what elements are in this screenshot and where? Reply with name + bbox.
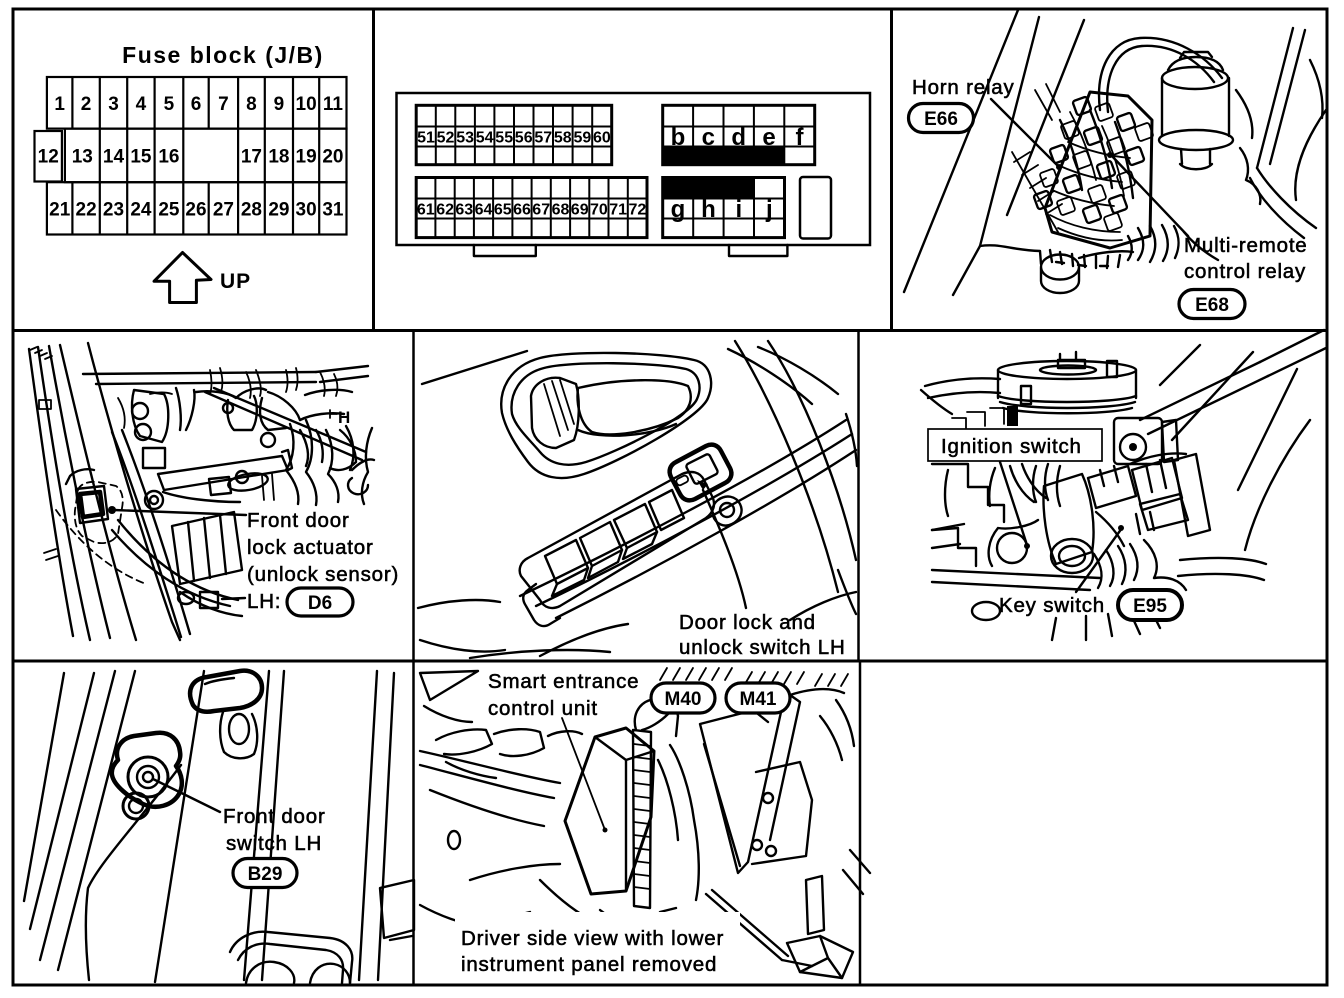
- svg-text:lock actuator: lock actuator: [247, 536, 374, 559]
- svg-text:D6: D6: [308, 593, 332, 614]
- svg-text:Key switch: Key switch: [999, 594, 1105, 617]
- svg-text:72: 72: [629, 201, 647, 218]
- svg-text:24: 24: [130, 199, 152, 220]
- svg-text:instrument panel removed: instrument panel removed: [461, 953, 717, 976]
- svg-text:21: 21: [49, 199, 71, 220]
- svg-text:62: 62: [436, 201, 454, 218]
- svg-text:h: h: [701, 196, 716, 223]
- svg-text:68: 68: [552, 201, 570, 218]
- svg-text:29: 29: [268, 199, 289, 220]
- svg-text:55: 55: [495, 129, 513, 146]
- svg-text:E66: E66: [924, 109, 958, 130]
- svg-text:M40: M40: [665, 689, 702, 710]
- svg-text:17: 17: [241, 146, 262, 167]
- svg-text:E68: E68: [1195, 295, 1229, 316]
- svg-text:11: 11: [323, 94, 344, 115]
- svg-text:8: 8: [246, 94, 257, 115]
- svg-text:28: 28: [241, 199, 262, 220]
- svg-text:E95: E95: [1133, 596, 1167, 617]
- svg-text:control unit: control unit: [488, 697, 598, 720]
- svg-text:j: j: [765, 196, 773, 223]
- svg-text:23: 23: [103, 199, 124, 220]
- svg-text:6: 6: [191, 94, 202, 115]
- svg-text:70: 70: [590, 201, 608, 218]
- svg-text:31: 31: [322, 199, 344, 220]
- svg-text:H: H: [338, 408, 350, 427]
- svg-text:71: 71: [609, 201, 627, 218]
- svg-text:69: 69: [571, 201, 589, 218]
- svg-text:66: 66: [513, 201, 531, 218]
- svg-text:54: 54: [476, 129, 494, 146]
- svg-text:61: 61: [417, 201, 435, 218]
- svg-text:i: i: [735, 196, 742, 223]
- svg-text:Ignition switch: Ignition switch: [941, 435, 1082, 458]
- svg-text:f: f: [796, 124, 805, 151]
- svg-text:10: 10: [296, 94, 317, 115]
- svg-text:20: 20: [322, 146, 343, 167]
- svg-text:19: 19: [296, 146, 317, 167]
- svg-text:(unlock sensor): (unlock sensor): [247, 563, 399, 586]
- svg-text:UP: UP: [220, 270, 251, 293]
- svg-text:15: 15: [130, 146, 152, 167]
- svg-text:26: 26: [185, 199, 206, 220]
- svg-text:60: 60: [593, 129, 611, 146]
- svg-text:Smart entrance: Smart entrance: [488, 670, 639, 693]
- svg-text:3: 3: [108, 94, 119, 115]
- svg-text:switch LH: switch LH: [226, 832, 322, 855]
- svg-text:56: 56: [515, 129, 533, 146]
- svg-text:27: 27: [213, 199, 234, 220]
- svg-text:30: 30: [296, 199, 317, 220]
- svg-text:57: 57: [534, 129, 552, 146]
- svg-text:control relay: control relay: [1184, 260, 1306, 283]
- svg-text:Horn relay: Horn relay: [912, 76, 1015, 99]
- svg-text:16: 16: [158, 146, 179, 167]
- svg-text:M41: M41: [740, 689, 777, 710]
- svg-text:7: 7: [218, 94, 229, 115]
- svg-text:12: 12: [38, 146, 59, 167]
- svg-text:14: 14: [103, 146, 125, 167]
- svg-text:52: 52: [437, 129, 455, 146]
- svg-text:Fuse block (J/B): Fuse block (J/B): [122, 42, 324, 68]
- svg-text:18: 18: [268, 146, 289, 167]
- svg-text:9: 9: [274, 94, 285, 115]
- svg-text:5: 5: [164, 94, 175, 115]
- svg-text:51: 51: [417, 129, 435, 146]
- svg-text:58: 58: [554, 129, 572, 146]
- svg-text:63: 63: [455, 201, 473, 218]
- svg-text:Front door: Front door: [247, 509, 350, 532]
- svg-text:1: 1: [54, 94, 65, 115]
- svg-text:53: 53: [456, 129, 474, 146]
- svg-text:c: c: [702, 124, 715, 151]
- svg-text:B29: B29: [248, 864, 283, 885]
- svg-text:13: 13: [72, 146, 93, 167]
- svg-text:Driver side view with lower: Driver side view with lower: [461, 927, 724, 950]
- svg-text:59: 59: [574, 129, 592, 146]
- svg-text:65: 65: [494, 201, 512, 218]
- svg-text:4: 4: [136, 94, 147, 115]
- svg-text:g: g: [671, 196, 686, 223]
- svg-text:b: b: [671, 124, 686, 151]
- svg-text:Front door: Front door: [223, 805, 326, 828]
- svg-text:64: 64: [475, 201, 493, 218]
- svg-text:LH:: LH:: [247, 590, 281, 613]
- svg-text:2: 2: [81, 94, 92, 115]
- svg-text:Multi-remote: Multi-remote: [1184, 234, 1308, 257]
- svg-text:22: 22: [76, 199, 97, 220]
- svg-text:Door lock and: Door lock and: [679, 611, 816, 634]
- svg-text:67: 67: [532, 201, 550, 218]
- svg-text:unlock switch LH: unlock switch LH: [679, 636, 846, 659]
- svg-text:e: e: [762, 124, 775, 151]
- svg-text:25: 25: [158, 199, 180, 220]
- svg-text:d: d: [731, 124, 746, 151]
